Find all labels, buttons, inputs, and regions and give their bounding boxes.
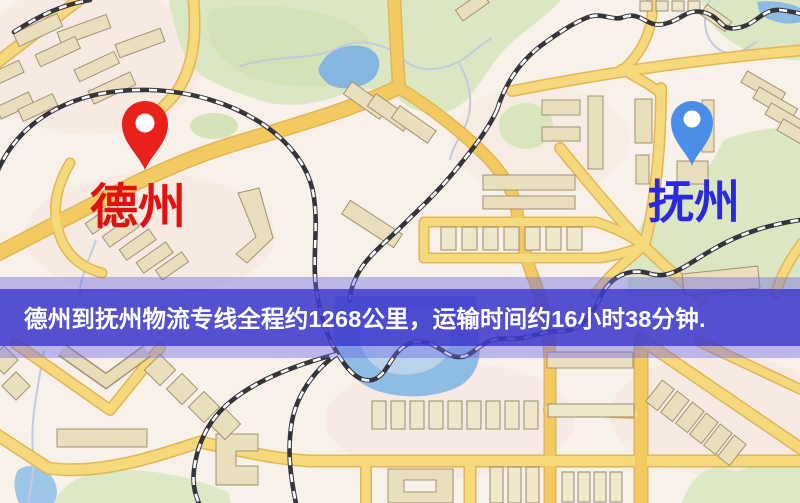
map-image: 德州到抚州物流专线全程约1268公里，运输时间约16小时38分钟. 德州 抚州: [0, 0, 800, 503]
destination-pin-hole: [684, 111, 701, 128]
route-info-banner: 德州到抚州物流专线全程约1268公里，运输时间约16小时38分钟.: [0, 277, 800, 358]
origin-label: 德州: [90, 181, 186, 234]
banner-text: 德州到抚州物流专线全程约1268公里，运输时间约16小时38分钟.: [24, 305, 706, 332]
destination-label: 抚州: [648, 176, 740, 228]
origin-pin-hole: [136, 114, 155, 133]
map-canvas[interactable]: 德州到抚州物流专线全程约1268公里，运输时间约16小时38分钟. 德州 抚州: [0, 0, 800, 503]
